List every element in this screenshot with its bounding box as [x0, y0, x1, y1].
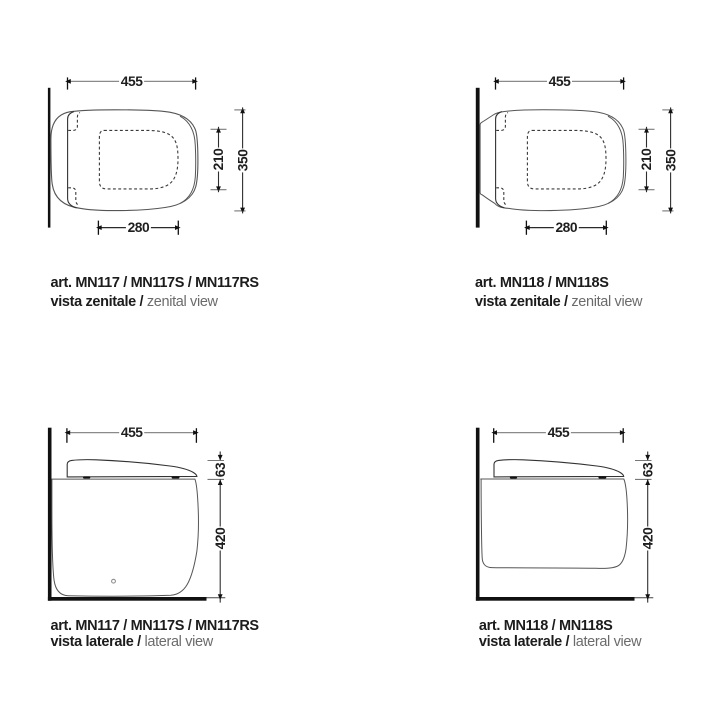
svg-text:280: 280 [128, 220, 150, 235]
svg-text:art. MN117 / MN117S / MN117RS: art. MN117 / MN117S / MN117RS [51, 618, 260, 634]
svg-text:455: 455 [121, 425, 143, 440]
svg-text:63: 63 [213, 462, 228, 477]
svg-text:vista laterale / lateral view: vista laterale / lateral view [479, 634, 642, 650]
svg-text:280: 280 [555, 220, 577, 235]
svg-text:art. MN118 / MN118S: art. MN118 / MN118S [479, 618, 613, 634]
svg-text:455: 455 [548, 425, 570, 440]
svg-text:vista zenitale / zenital view: vista zenitale / zenital view [51, 294, 219, 310]
svg-text:vista zenitale / zenital view: vista zenitale / zenital view [475, 294, 643, 310]
svg-text:455: 455 [549, 74, 571, 89]
svg-text:vista laterale / lateral view: vista laterale / lateral view [51, 634, 214, 650]
svg-text:210: 210 [639, 148, 654, 170]
svg-text:350: 350 [235, 149, 250, 171]
svg-text:art. MN118 / MN118S: art. MN118 / MN118S [475, 275, 609, 291]
svg-text:420: 420 [213, 527, 228, 549]
svg-text:455: 455 [121, 74, 143, 89]
svg-text:350: 350 [663, 149, 678, 171]
svg-text:420: 420 [640, 527, 655, 549]
svg-text:art. MN117 / MN117S / MN117RS: art. MN117 / MN117S / MN117RS [51, 275, 260, 291]
svg-text:210: 210 [211, 148, 226, 170]
svg-text:63: 63 [640, 462, 655, 477]
